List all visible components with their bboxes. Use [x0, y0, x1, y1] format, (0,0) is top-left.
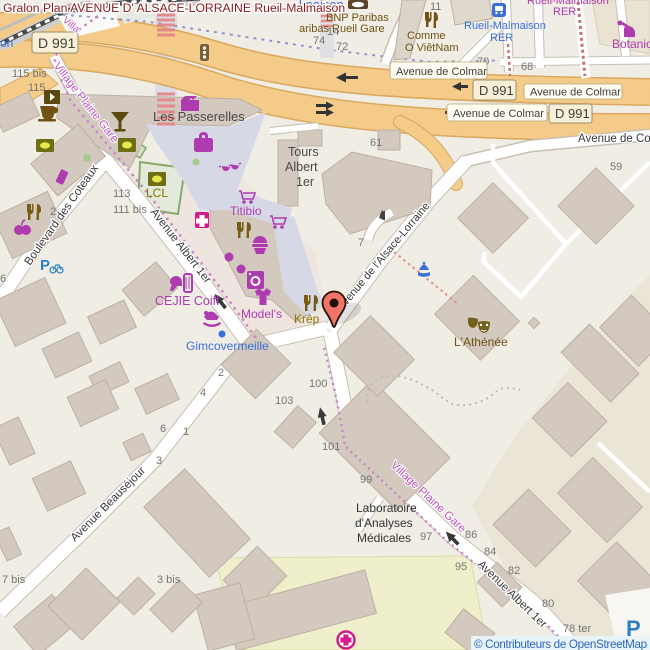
- svg-text:95: 95: [455, 561, 467, 573]
- svg-text:111 bis: 111 bis: [113, 204, 147, 216]
- svg-text:© Contributeurs de OpenStreetM: © Contributeurs de OpenStreetMap: [474, 638, 648, 650]
- svg-text:3 bis: 3 bis: [157, 574, 181, 586]
- svg-text:D 991: D 991: [479, 83, 514, 98]
- svg-text:D 991: D 991: [555, 106, 590, 121]
- svg-text:101: 101: [322, 441, 340, 453]
- svg-text:Médicales: Médicales: [357, 531, 411, 545]
- svg-text:14: 14: [327, 26, 339, 38]
- svg-text:Comme: Comme: [407, 30, 446, 42]
- svg-text:80: 80: [542, 598, 554, 610]
- svg-text:Albert: Albert: [285, 160, 318, 174]
- svg-text:Krêp: Krêp: [294, 312, 320, 326]
- svg-text:99: 99: [360, 474, 372, 486]
- svg-text:103: 103: [275, 395, 293, 407]
- svg-text:aribas Rueil Gare: aribas Rueil Gare: [299, 23, 385, 35]
- svg-text:4: 4: [200, 387, 206, 399]
- svg-text:Gralon Plan AVENUE D' ALSACE-L: Gralon Plan AVENUE D' ALSACE-LORRAINE Ru…: [3, 1, 345, 15]
- svg-text:74: 74: [313, 35, 325, 47]
- svg-text:61: 61: [370, 137, 382, 149]
- svg-text:Avenue de Colmar: Avenue de Colmar: [396, 66, 487, 78]
- svg-text:Tours: Tours: [288, 145, 319, 159]
- svg-text:86: 86: [465, 529, 477, 541]
- svg-text:Botanic: Botanic: [612, 37, 650, 51]
- svg-text:LCL: LCL: [146, 186, 168, 200]
- svg-text:78 ter: 78 ter: [563, 623, 591, 635]
- svg-text:Titibio: Titibio: [230, 204, 262, 218]
- svg-text:RER: RER: [490, 32, 513, 44]
- svg-text:on: on: [0, 36, 13, 50]
- svg-text:Avenue de Co: Avenue de Co: [578, 133, 650, 145]
- svg-text:6: 6: [0, 273, 6, 285]
- svg-text:D 991: D 991: [38, 35, 76, 51]
- svg-text:82: 82: [508, 565, 520, 577]
- svg-text:7: 7: [358, 237, 364, 249]
- svg-text:100: 100: [309, 378, 327, 390]
- svg-text:O ViêtNam: O ViêtNam: [405, 42, 459, 54]
- svg-text:84: 84: [484, 546, 496, 558]
- svg-text:Gimcovermeille: Gimcovermeille: [186, 339, 269, 353]
- svg-text:115: 115: [28, 82, 46, 94]
- svg-text:d'Analyses: d'Analyses: [355, 516, 413, 530]
- svg-text:6: 6: [160, 423, 166, 435]
- svg-text:2: 2: [218, 367, 224, 379]
- svg-text:CEJIE Coiff: CEJIE Coiff: [155, 294, 220, 308]
- svg-text:Rueil-Malmaison: Rueil-Malmaison: [464, 20, 546, 32]
- svg-text:113: 113: [113, 188, 131, 200]
- svg-text:11: 11: [430, 1, 441, 13]
- svg-text:97: 97: [420, 531, 432, 543]
- svg-text:1er: 1er: [296, 175, 314, 189]
- svg-text:7 bis: 7 bis: [2, 574, 26, 586]
- svg-text:RER: RER: [553, 6, 576, 18]
- svg-text:68: 68: [521, 61, 533, 73]
- svg-text:Les Passerelles: Les Passerelles: [153, 109, 245, 124]
- svg-text:1: 1: [183, 426, 189, 438]
- svg-text:115 bis: 115 bis: [12, 68, 47, 80]
- svg-text:Avenue de Colmar: Avenue de Colmar: [530, 87, 621, 99]
- svg-text:72: 72: [336, 41, 348, 53]
- svg-text:Avenue de Colmar: Avenue de Colmar: [453, 108, 544, 120]
- svg-text:P: P: [40, 257, 50, 274]
- svg-text:Laboratoire: Laboratoire: [356, 501, 417, 515]
- svg-text:59: 59: [610, 161, 622, 173]
- svg-text:Model's: Model's: [241, 307, 282, 321]
- svg-text:L'Athénée: L'Athénée: [454, 335, 508, 349]
- svg-text:3: 3: [156, 455, 162, 467]
